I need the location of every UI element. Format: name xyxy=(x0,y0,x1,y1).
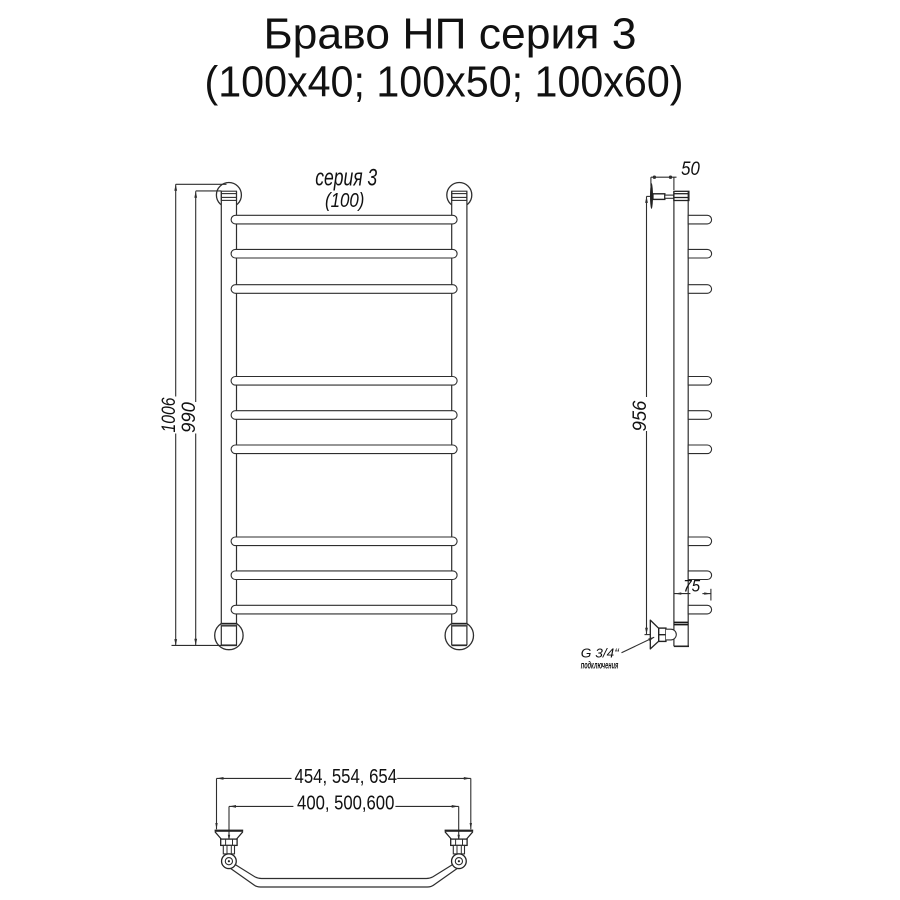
svg-text:G 3/4“: G 3/4“ xyxy=(581,645,620,660)
svg-text:серия 3: серия 3 xyxy=(315,165,377,192)
svg-text:(100x40; 100x50; 100x60): (100x40; 100x50; 100x60) xyxy=(205,57,684,106)
svg-text:(100): (100) xyxy=(325,189,365,212)
svg-text:75: 75 xyxy=(683,576,700,595)
svg-text:956: 956 xyxy=(630,400,651,431)
svg-text:1006: 1006 xyxy=(159,397,180,432)
svg-text:50: 50 xyxy=(681,159,700,180)
svg-text:400, 500,600: 400, 500,600 xyxy=(297,792,394,814)
svg-text:Браво НП серия 3: Браво НП серия 3 xyxy=(264,10,637,59)
svg-text:454, 554, 654: 454, 554, 654 xyxy=(295,766,398,788)
svg-text:подключения: подключения xyxy=(581,660,619,671)
svg-text:990: 990 xyxy=(179,402,200,433)
